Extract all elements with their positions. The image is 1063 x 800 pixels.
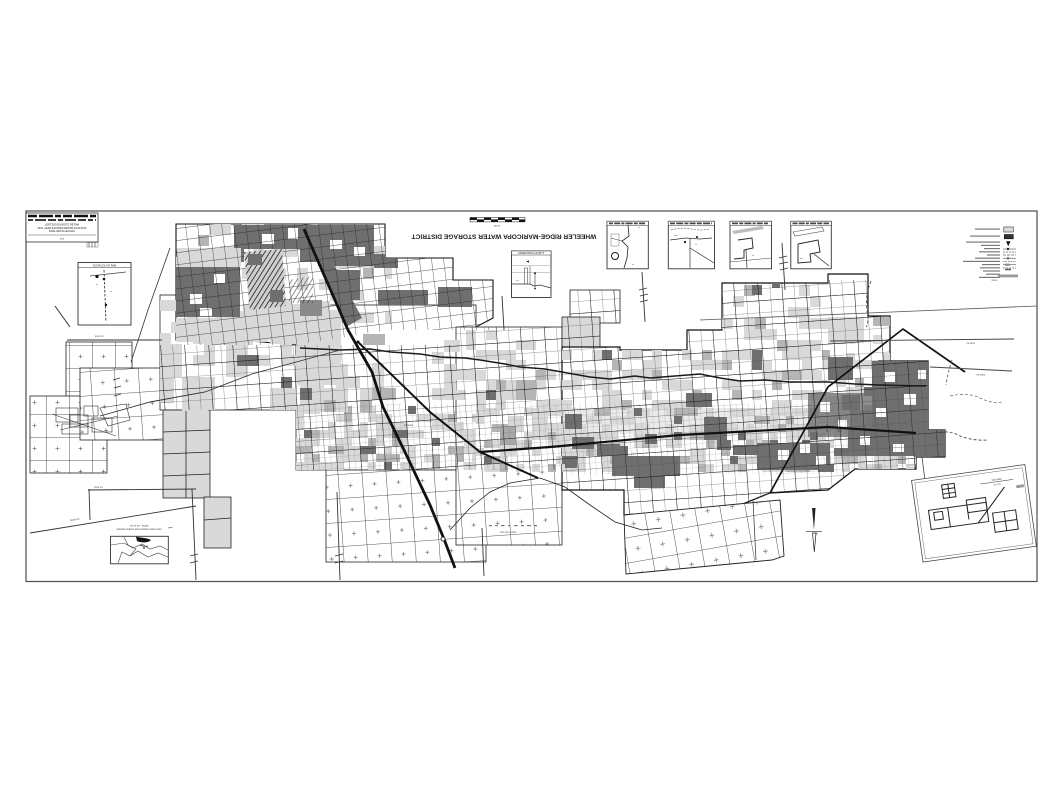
svg-text:WHEELER RIDGE-MARICOPA WATER S: WHEELER RIDGE-MARICOPA WATER STORAGE DIS… <box>412 233 597 240</box>
svg-text:xxxx xx: xxxx xx <box>94 486 103 489</box>
svg-text:xx: xx <box>752 255 754 257</box>
svg-text:xxxxxxx: xxxxxxx <box>404 424 414 427</box>
svg-text:xxx: xxx <box>60 237 65 241</box>
svg-text:x: x <box>816 532 818 536</box>
svg-text:xxx: xxx <box>516 280 519 282</box>
svg-text:xxxx: xxxx <box>674 235 678 237</box>
svg-text:DNAL DETALLECNAC: DNAL DETALLECNAC <box>49 229 75 233</box>
svg-text:NOITACOL FO PAM: NOITACOL FO PAM <box>93 263 116 267</box>
svg-text:LIATED PMUS LACIPYT: LIATED PMUS LACIPYT <box>518 252 545 255</box>
svg-text:xx: xx <box>632 264 634 266</box>
svg-text:xx: xx <box>638 227 640 229</box>
svg-text:xxx xxx x xxxx: xxx xxx x xxxx <box>500 531 517 534</box>
svg-text:xxx xx: xxx xx <box>494 225 501 228</box>
svg-text:xx: xx <box>695 244 697 246</box>
svg-text:xxxx xx: xxxx xx <box>976 373 985 376</box>
svg-text:xxxxx: xxxxx <box>992 279 999 282</box>
svg-text:xxxx xx: xxxx xx <box>966 342 975 345</box>
svg-text:xxx: xxx <box>800 258 803 260</box>
svg-text:xxxxx xx: xxxxx xx <box>70 517 81 522</box>
svg-text:xxxxxxx xxxxxx xxxx xxxxxx xxx: xxxxxxx xxxxxx xxxx xxxxxx xxxxx xxxx <box>116 528 162 531</box>
svg-text:xxxx xx: xxxx xx <box>95 335 104 338</box>
svg-text:xx: xx <box>96 284 98 286</box>
svg-text:xx: xx <box>110 291 112 293</box>
